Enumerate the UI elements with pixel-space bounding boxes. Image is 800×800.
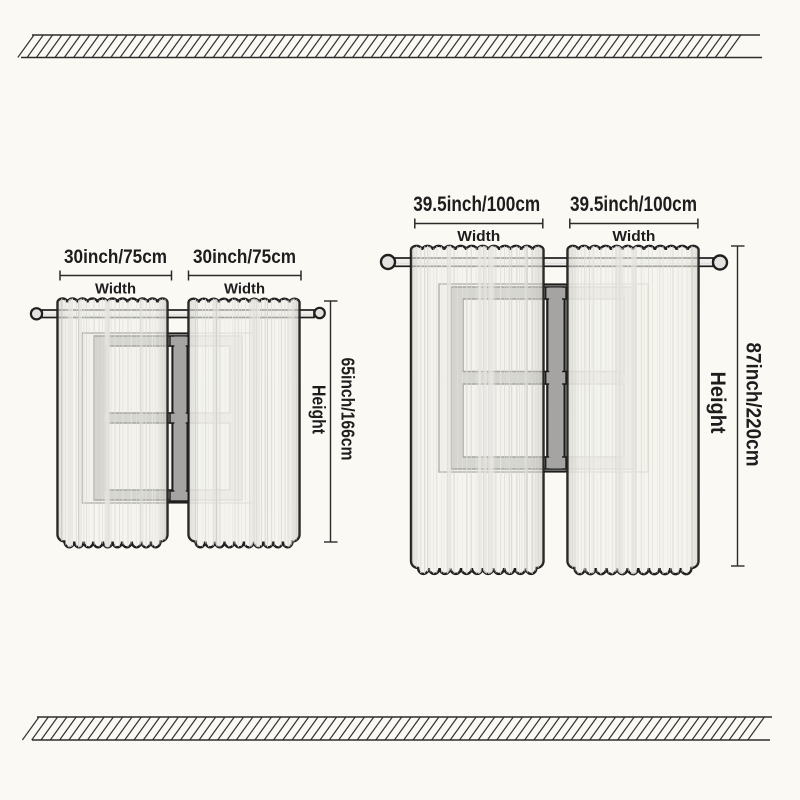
svg-text:Height: Height: [706, 372, 729, 434]
svg-text:30inch/75cm: 30inch/75cm: [64, 246, 167, 268]
svg-text:39.5inch/100cm: 39.5inch/100cm: [413, 193, 540, 216]
svg-text:39.5inch/100cm: 39.5inch/100cm: [570, 193, 697, 216]
svg-text:Width: Width: [224, 282, 265, 298]
svg-text:Height: Height: [309, 385, 329, 434]
svg-text:Width: Width: [457, 229, 500, 245]
svg-text:87inch/220cm: 87inch/220cm: [742, 343, 766, 467]
svg-text:Width: Width: [612, 229, 655, 245]
svg-text:Width: Width: [95, 282, 136, 298]
svg-text:65inch/166cm: 65inch/166cm: [338, 358, 359, 461]
svg-text:30inch/75cm: 30inch/75cm: [193, 246, 296, 268]
